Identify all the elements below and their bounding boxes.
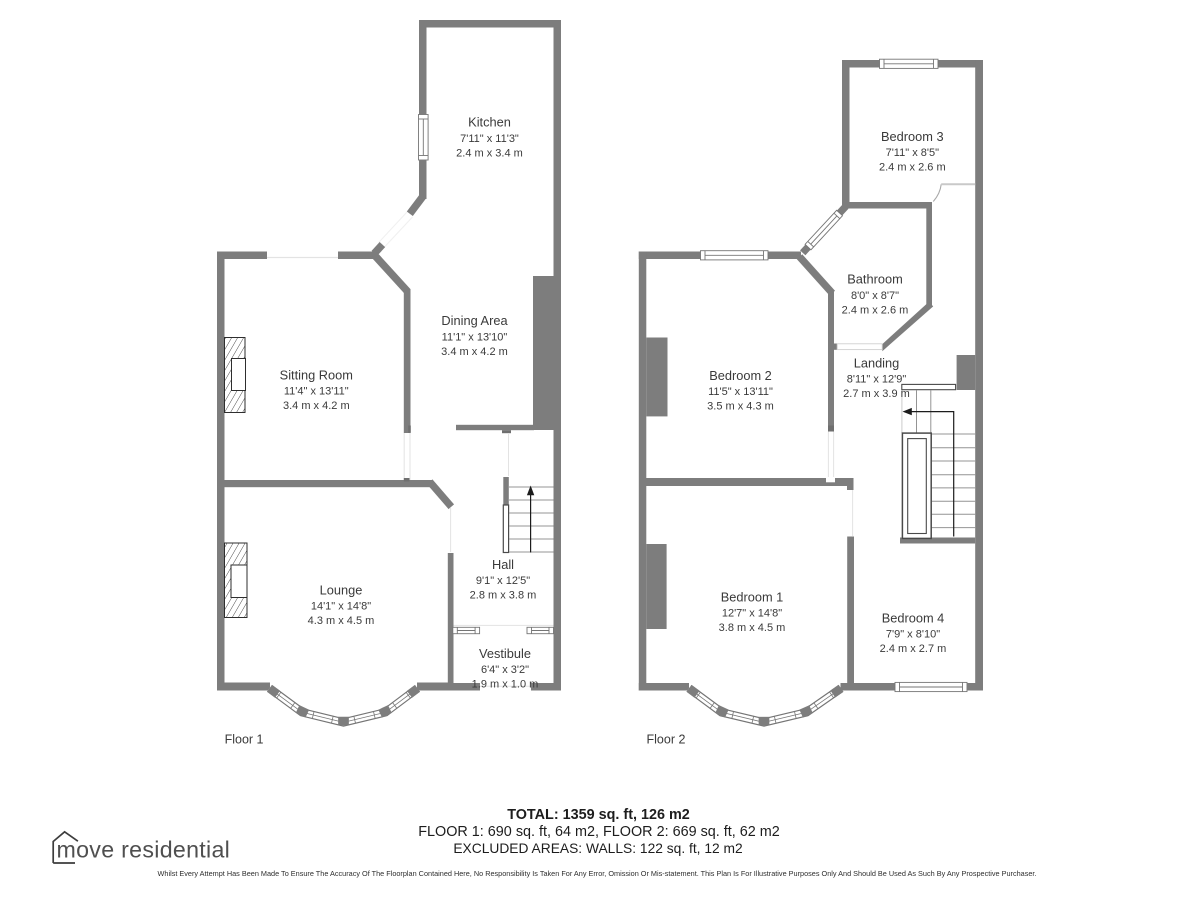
svg-text:3.4 m x 4.2 m: 3.4 m x 4.2 m bbox=[441, 346, 508, 358]
svg-text:2.4 m x 3.4 m: 2.4 m x 3.4 m bbox=[456, 148, 523, 160]
svg-text:3.8 m x 4.5 m: 3.8 m x 4.5 m bbox=[719, 622, 786, 634]
svg-text:2.4 m x 2.6 m: 2.4 m x 2.6 m bbox=[879, 162, 946, 174]
svg-text:2.8 m x 3.8 m: 2.8 m x 3.8 m bbox=[470, 590, 537, 602]
svg-text:Sitting Room: Sitting Room bbox=[280, 367, 353, 382]
svg-text:8'0" x 8'7": 8'0" x 8'7" bbox=[851, 290, 899, 302]
svg-text:EXCLUDED AREAS: WALLS: 122 sq.: EXCLUDED AREAS: WALLS: 122 sq. ft, 12 m2 bbox=[453, 841, 742, 856]
svg-text:Whilst Every Attempt Has Been: Whilst Every Attempt Has Been Made To En… bbox=[158, 869, 1037, 878]
svg-text:Bathroom: Bathroom bbox=[847, 272, 902, 287]
svg-text:Bedroom 3: Bedroom 3 bbox=[881, 129, 944, 144]
svg-text:3.5 m x 4.3 m: 3.5 m x 4.3 m bbox=[707, 401, 774, 413]
svg-text:11'5" x 13'11": 11'5" x 13'11" bbox=[708, 386, 773, 398]
svg-text:Vestibule: Vestibule bbox=[479, 646, 531, 661]
svg-text:8'11" x 12'9": 8'11" x 12'9" bbox=[847, 374, 907, 386]
svg-text:7'11" x 8'5": 7'11" x 8'5" bbox=[886, 147, 939, 159]
svg-text:Bedroom 2: Bedroom 2 bbox=[709, 368, 772, 383]
svg-text:1.9 m x 1.0 m: 1.9 m x 1.0 m bbox=[472, 679, 539, 691]
svg-text:12'7" x 14'8": 12'7" x 14'8" bbox=[722, 608, 782, 620]
svg-text:Landing: Landing bbox=[854, 355, 900, 370]
svg-text:3.4 m x 4.2 m: 3.4 m x 4.2 m bbox=[283, 400, 350, 412]
svg-text:FLOOR 1: 690 sq. ft, 64 m2, FL: FLOOR 1: 690 sq. ft, 64 m2, FLOOR 2: 669… bbox=[418, 824, 780, 840]
svg-text:Floor 2: Floor 2 bbox=[647, 733, 686, 747]
svg-text:Lounge: Lounge bbox=[320, 582, 363, 597]
svg-text:11'1" x 13'10": 11'1" x 13'10" bbox=[442, 331, 508, 343]
svg-text:Bedroom 1: Bedroom 1 bbox=[721, 589, 784, 604]
svg-text:Bedroom 4: Bedroom 4 bbox=[882, 610, 945, 625]
svg-text:Kitchen: Kitchen bbox=[468, 115, 511, 130]
svg-text:9'1" x 12'5": 9'1" x 12'5" bbox=[476, 575, 530, 587]
svg-text:Dining Area: Dining Area bbox=[441, 313, 508, 328]
svg-text:move residential: move residential bbox=[57, 837, 231, 863]
svg-text:14'1" x 14'8": 14'1" x 14'8" bbox=[311, 601, 371, 613]
svg-text:2.4 m x 2.6 m: 2.4 m x 2.6 m bbox=[842, 304, 909, 316]
svg-text:6'4" x 3'2": 6'4" x 3'2" bbox=[481, 664, 529, 676]
svg-text:4.3 m x 4.5 m: 4.3 m x 4.5 m bbox=[308, 615, 375, 627]
svg-text:7'9" x 8'10": 7'9" x 8'10" bbox=[886, 629, 940, 641]
svg-text:Hall: Hall bbox=[492, 557, 514, 572]
svg-text:7'11" x 11'3": 7'11" x 11'3" bbox=[460, 133, 519, 145]
svg-text:2.7 m x 3.9 m: 2.7 m x 3.9 m bbox=[843, 388, 910, 400]
svg-text:11'4" x 13'11": 11'4" x 13'11" bbox=[284, 386, 349, 398]
svg-text:TOTAL: 1359 sq. ft, 126 m2: TOTAL: 1359 sq. ft, 126 m2 bbox=[507, 807, 690, 823]
svg-text:Floor 1: Floor 1 bbox=[225, 733, 264, 747]
svg-text:2.4 m x 2.7 m: 2.4 m x 2.7 m bbox=[880, 643, 947, 655]
